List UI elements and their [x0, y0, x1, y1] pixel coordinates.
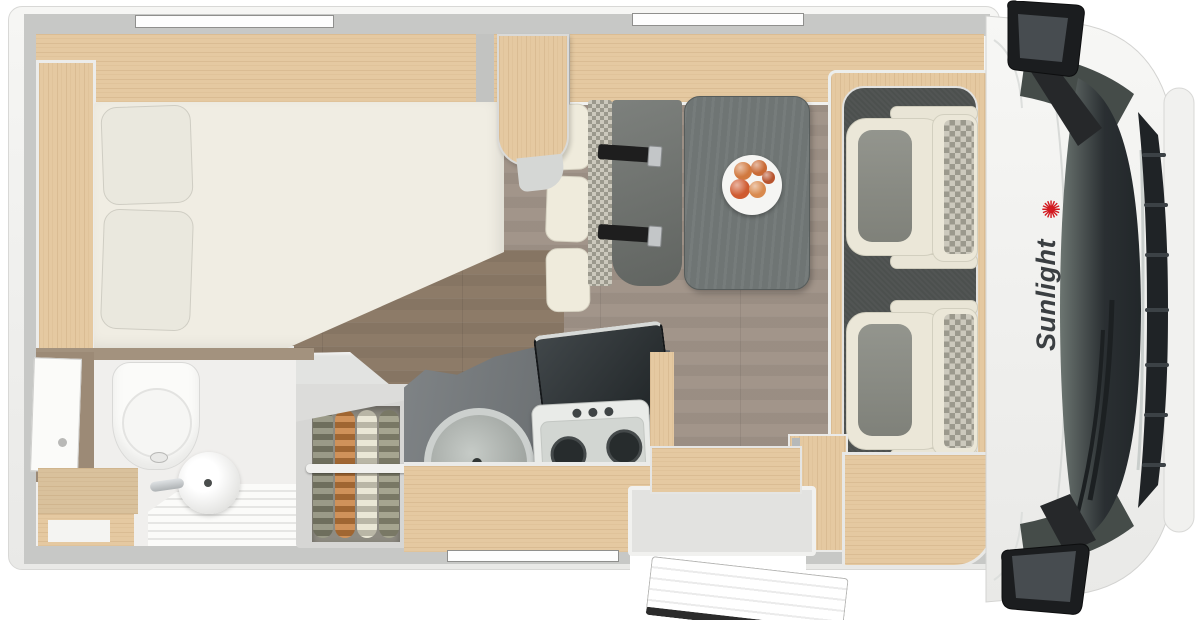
bench-cushion: [545, 248, 590, 313]
toilet-flush-button: [150, 452, 168, 463]
fruit: [734, 162, 752, 180]
hanging-garment: [313, 410, 333, 538]
cabinet-divider: [476, 34, 494, 106]
mirror-door-knob: [58, 438, 67, 447]
window-top-rear: [135, 15, 334, 28]
toilet-seat: [122, 388, 192, 458]
hanging-garment: [379, 410, 399, 538]
stove-knob: [572, 409, 581, 418]
tv-column: [497, 34, 569, 166]
bench-seat-base: [612, 100, 682, 286]
bathroom-mirror-door: [30, 357, 82, 473]
stove-knob: [588, 408, 597, 417]
bench-backrest: [588, 100, 612, 286]
cab-front: [928, 0, 1200, 620]
hanging-garment: [335, 410, 355, 538]
basin-drain: [204, 479, 212, 487]
stove-knob: [604, 407, 613, 416]
window-bottom: [447, 550, 619, 562]
fruit: [762, 171, 775, 184]
wardrobe-rail: [306, 464, 418, 473]
rear-shelf: [36, 60, 96, 356]
window-top-center: [632, 13, 804, 26]
seat-cushion-center: [858, 130, 912, 242]
motorhome-floorplan: ✺ Sunlight: [0, 0, 1200, 620]
fruit: [730, 179, 750, 199]
hanging-garment: [357, 410, 377, 538]
fruit: [749, 181, 766, 198]
door-step-frame: [628, 486, 816, 556]
brand-wordmark: Sunlight: [1029, 215, 1063, 375]
pillow: [100, 208, 194, 331]
fruit-plate: [722, 155, 782, 215]
pillow: [100, 104, 193, 205]
seat-belt-buckle: [647, 145, 662, 167]
bathroom-shelf-cubby: [48, 520, 110, 542]
seat-belt-buckle: [647, 225, 662, 247]
door-threshold-panel: [650, 446, 802, 494]
bathroom-counter: [38, 468, 138, 514]
seat-cushion-center: [858, 324, 912, 436]
